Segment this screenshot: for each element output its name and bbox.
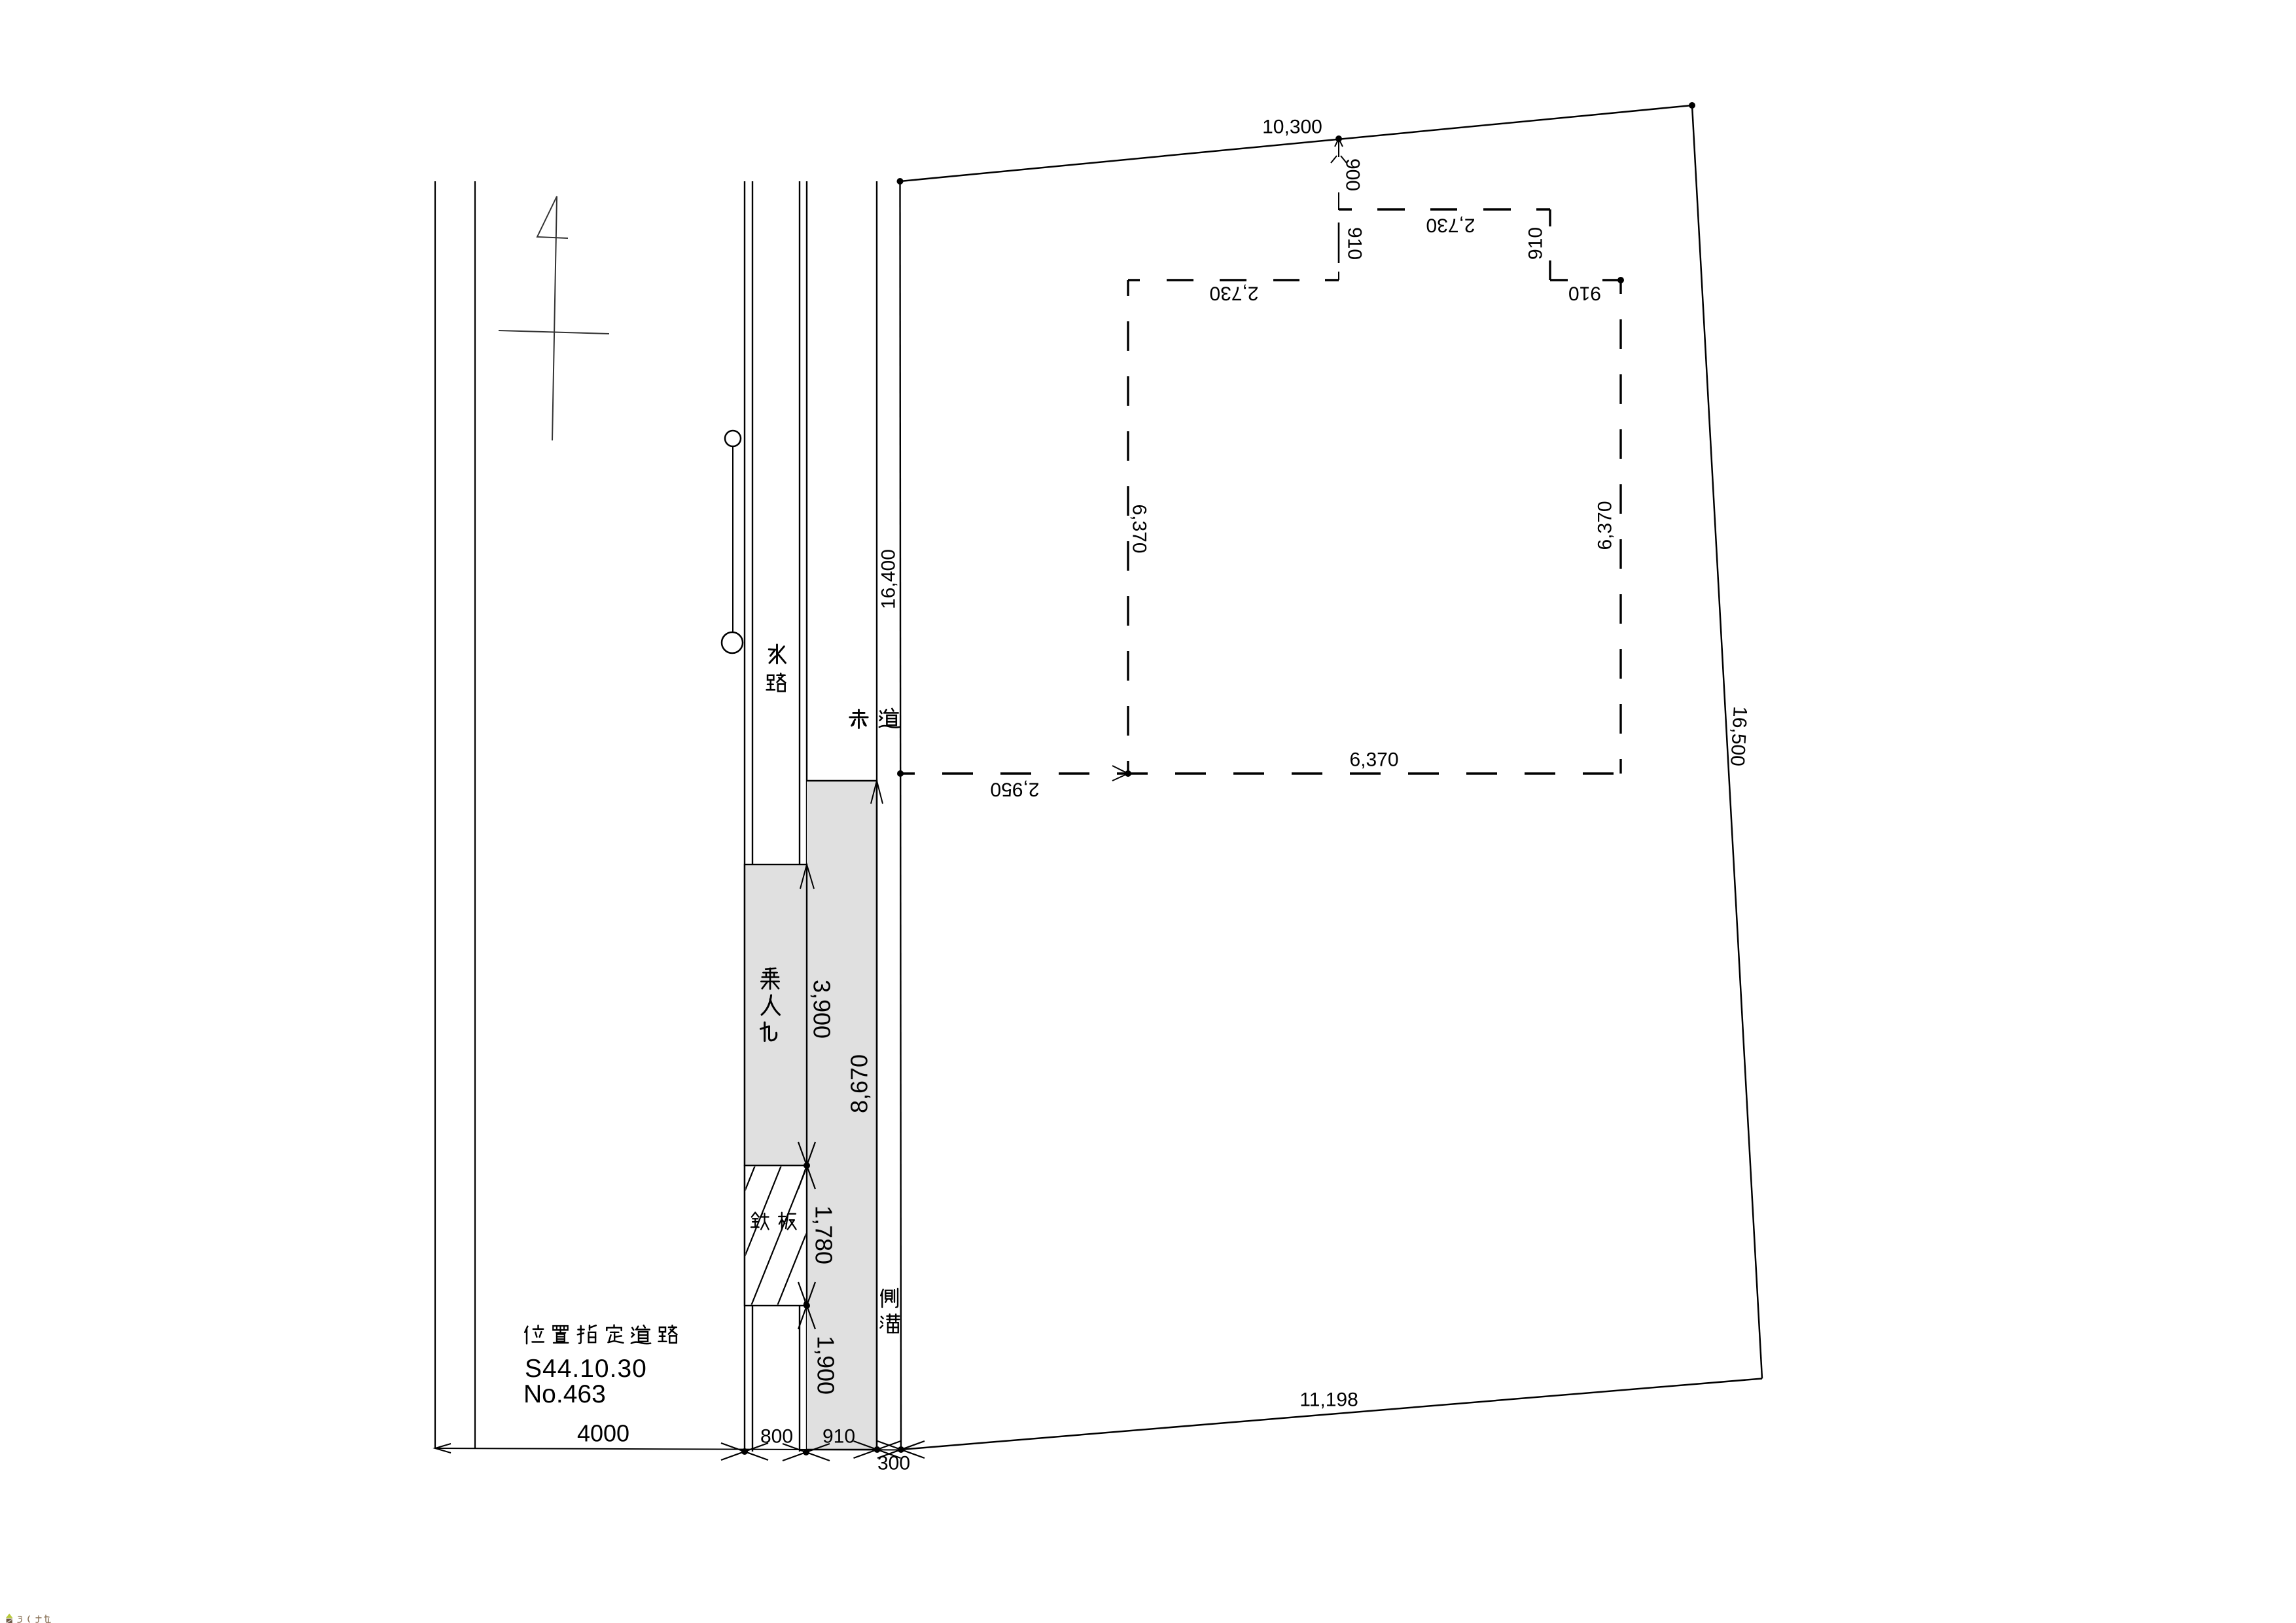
svg-text:2,730: 2,730 [1209,283,1258,304]
svg-text:16,500: 16,500 [1726,705,1751,766]
svg-text:S44.10.30: S44.10.30 [525,1355,647,1383]
svg-text:2,730: 2,730 [1426,215,1475,236]
svg-text:910: 910 [1344,227,1366,260]
svg-text:900: 900 [1342,158,1364,191]
svg-text:8,670: 8,670 [846,1054,873,1113]
svg-text:4000: 4000 [577,1420,629,1447]
svg-text:6,370: 6,370 [1129,504,1150,553]
svg-text:300: 300 [877,1453,910,1474]
svg-text:3,900: 3,900 [809,980,836,1039]
svg-text:1,900: 1,900 [813,1336,839,1395]
svg-text:800: 800 [760,1426,793,1448]
svg-text:No.463: No.463 [523,1380,606,1408]
svg-text:16,400: 16,400 [878,549,900,609]
svg-text:1,780: 1,780 [811,1205,838,1264]
svg-text:11,198: 11,198 [1299,1389,1358,1411]
svg-text:910: 910 [1525,227,1547,260]
svg-text:10,300: 10,300 [1262,116,1322,138]
svg-text:910: 910 [1568,283,1601,304]
svg-text:910: 910 [822,1426,855,1448]
svg-text:2,950: 2,950 [990,779,1039,800]
svg-text:6,370: 6,370 [1349,749,1398,771]
svg-text:6,370: 6,370 [1595,501,1616,550]
